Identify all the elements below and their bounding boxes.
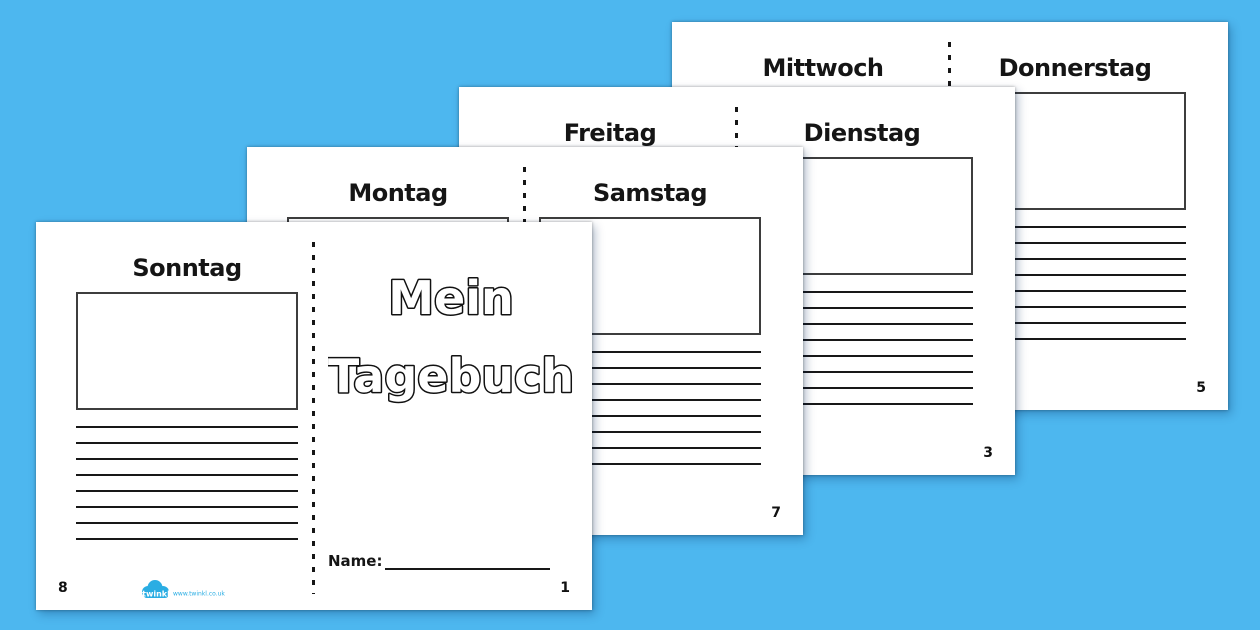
name-label: Name: <box>328 552 382 570</box>
writing-line <box>76 506 298 508</box>
twinkl-logo: twinkl www.twinkl.co.uk <box>76 578 298 602</box>
dotted-fold-line <box>312 242 315 594</box>
sheet-cover-sonntag: Sonntag 8 twinkl www.twinkl.co.uk <box>36 222 592 610</box>
writing-line <box>76 426 298 428</box>
day-title: Mittwoch <box>712 54 934 82</box>
twinkl-url-text: www.twinkl.co.uk <box>173 591 225 598</box>
writing-line <box>76 522 298 524</box>
day-title: Montag <box>287 179 509 207</box>
writing-line <box>76 538 298 540</box>
page-number: 5 <box>1196 380 1206 396</box>
cover-title: Mein Tagebuch <box>328 250 604 410</box>
section-cover: Mein Tagebuch Name: 1 <box>314 222 592 610</box>
section-sonntag: Sonntag 8 twinkl www.twinkl.co.uk <box>36 222 314 610</box>
twinkl-brand-text: twinkl <box>142 590 170 599</box>
day-title: Dienstag <box>751 119 973 147</box>
day-title: Samstag <box>539 179 761 207</box>
day-title: Sonntag <box>76 254 298 282</box>
writing-line <box>76 490 298 492</box>
page-number: 8 <box>58 580 68 596</box>
name-row: Name: <box>328 552 550 570</box>
cover-title-line1: Mein <box>388 271 514 325</box>
twinkl-logo-graphic: twinkl www.twinkl.co.uk <box>139 578 235 602</box>
day-title: Freitag <box>499 119 721 147</box>
page-number: 1 <box>560 580 570 596</box>
picture-box <box>76 292 298 410</box>
day-title: Donnerstag <box>964 54 1186 82</box>
writing-line <box>76 458 298 460</box>
name-fill-line <box>385 553 550 570</box>
page-number: 7 <box>771 505 781 521</box>
writing-lines <box>76 426 298 554</box>
writing-line <box>76 474 298 476</box>
page-number: 3 <box>983 445 993 461</box>
cover-title-line2: Tagebuch <box>328 349 574 403</box>
worksheet-stack-scene: Mittwoch Donnerstag 5 Freitag <box>0 0 1260 630</box>
writing-line <box>76 442 298 444</box>
